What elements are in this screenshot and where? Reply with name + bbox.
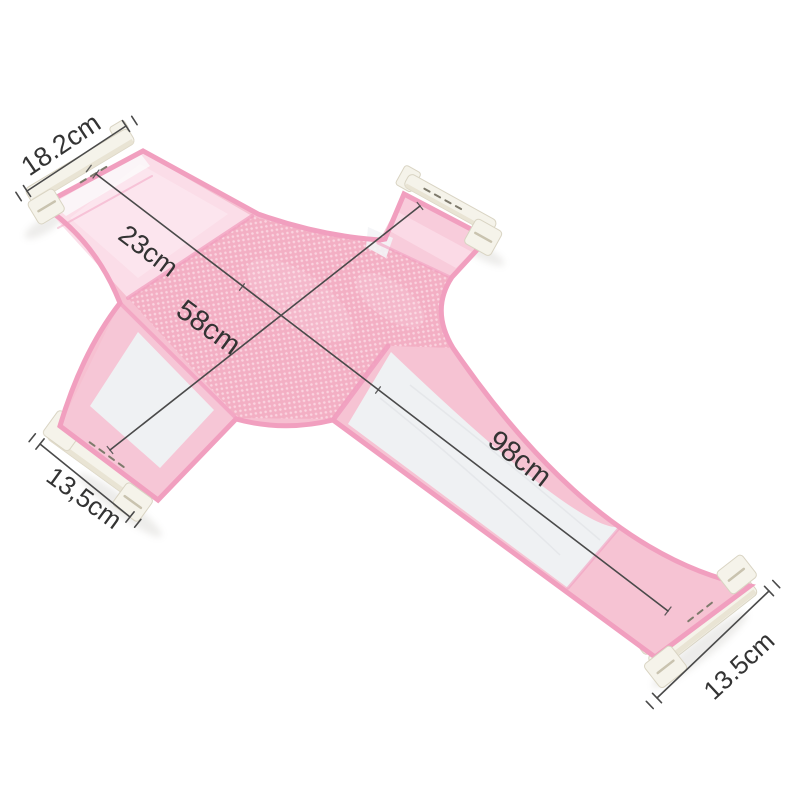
product-photo: 18.2cm 23cm 58cm 98cm 13,5cm 13.5cm [0,0,800,800]
bath-net-illustration: 18.2cm 23cm 58cm 98cm 13,5cm 13.5cm [0,0,800,800]
